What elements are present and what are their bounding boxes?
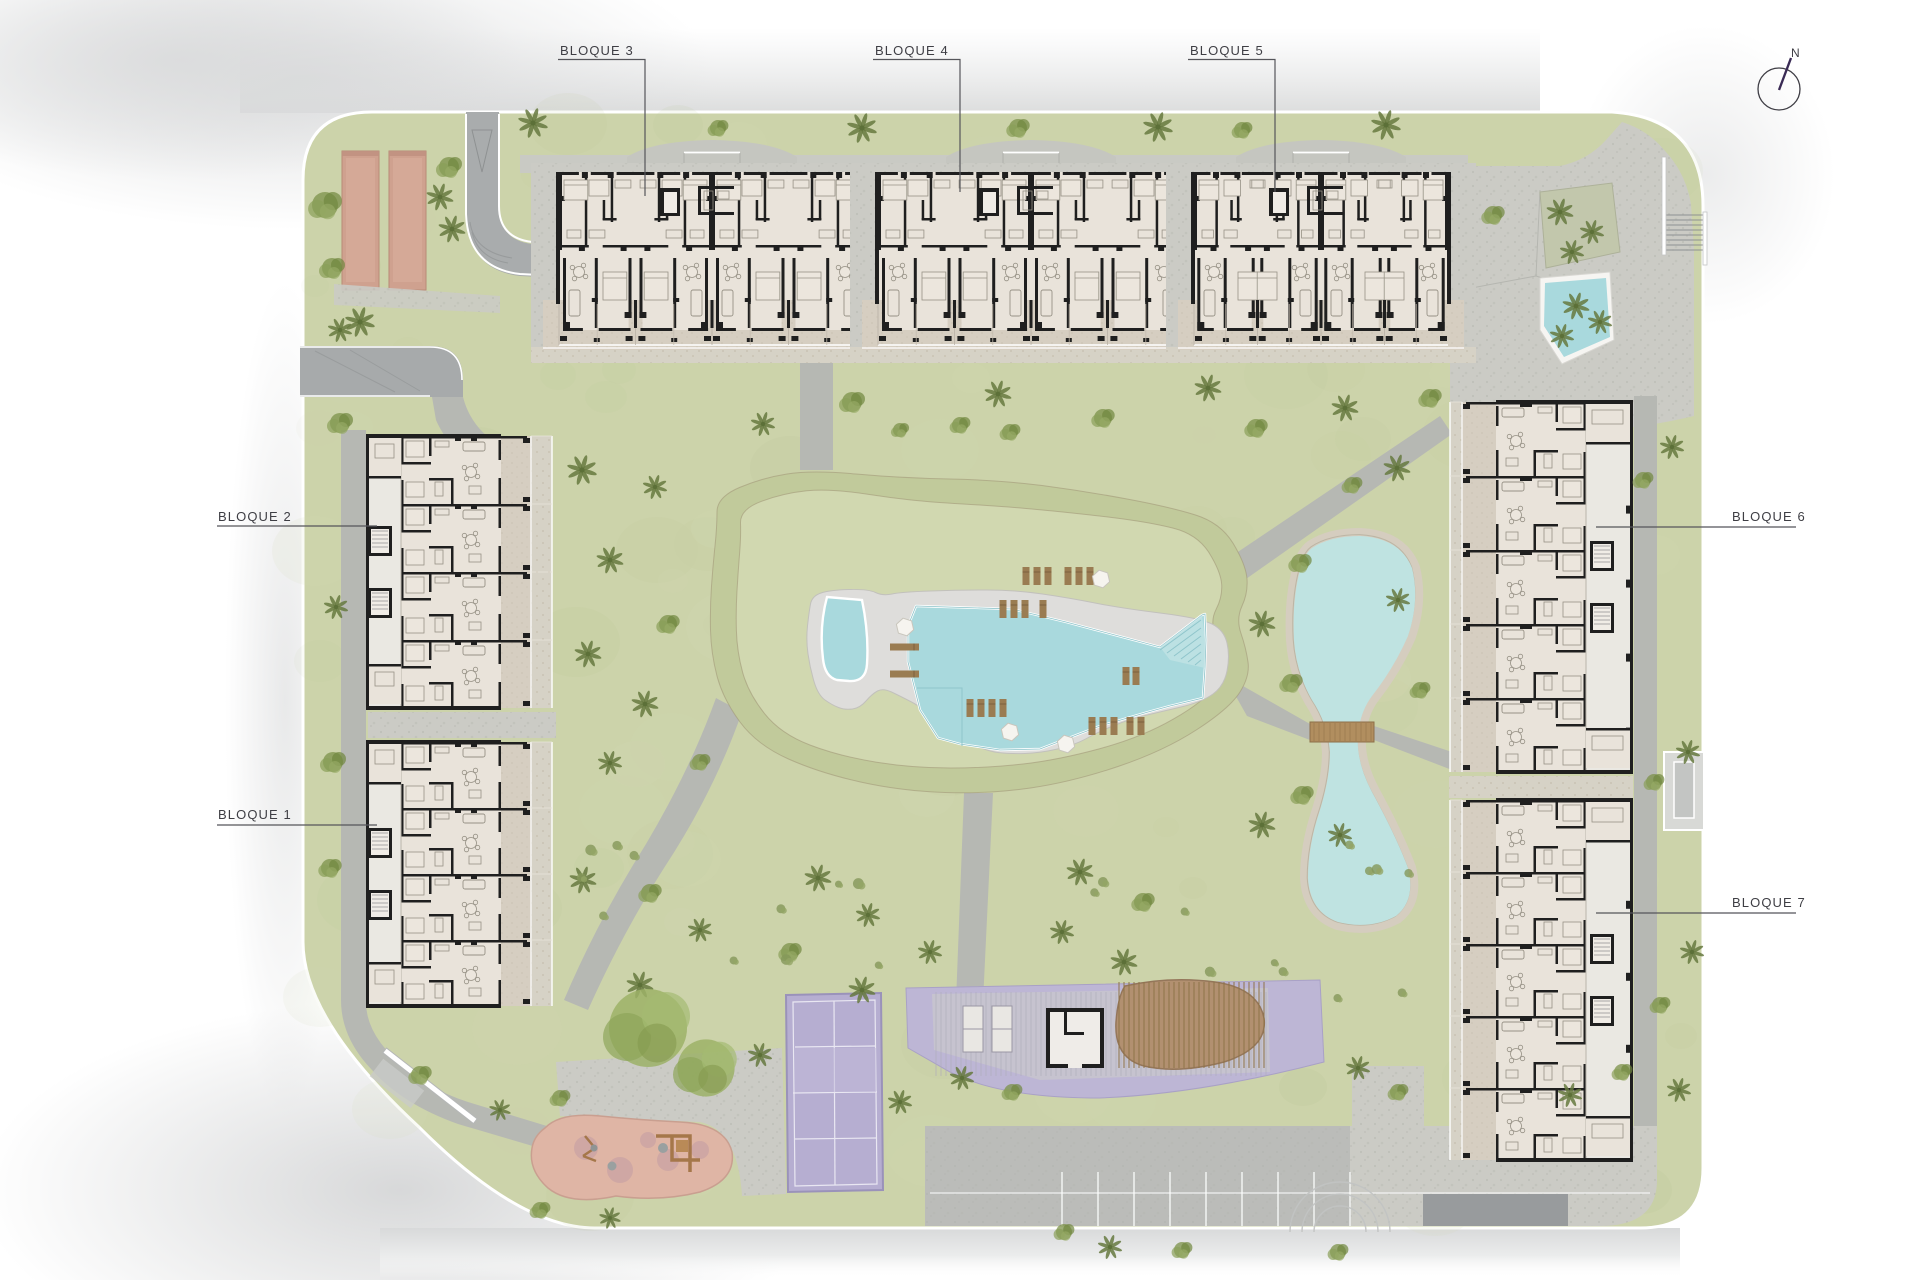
svg-text:BLOQUE 4: BLOQUE 4 <box>875 43 949 58</box>
svg-text:BLOQUE 3: BLOQUE 3 <box>560 43 634 58</box>
svg-text:BLOQUE 7: BLOQUE 7 <box>1732 895 1806 910</box>
svg-text:N: N <box>1791 46 1800 60</box>
svg-text:BLOQUE 6: BLOQUE 6 <box>1732 509 1806 524</box>
svg-text:BLOQUE 5: BLOQUE 5 <box>1190 43 1264 58</box>
svg-text:BLOQUE 2: BLOQUE 2 <box>218 509 292 524</box>
svg-text:BLOQUE 1: BLOQUE 1 <box>218 807 292 822</box>
